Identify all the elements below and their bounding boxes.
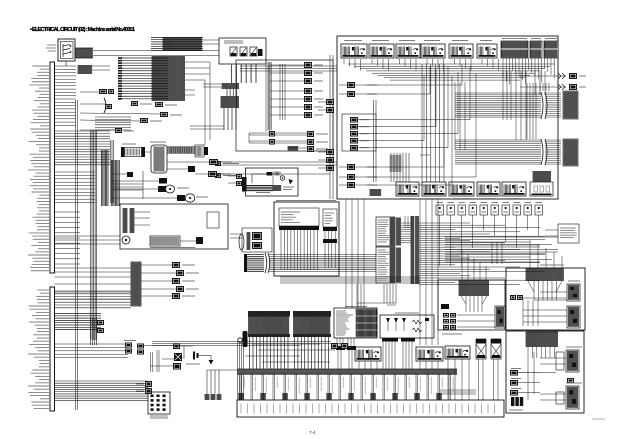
svg-text:7-4: 7-4: [309, 430, 316, 435]
svg-text:• ELECTRICAL CIRCUIT (02) : Ma: • ELECTRICAL CIRCUIT (02) : Machine seri…: [30, 27, 135, 33]
